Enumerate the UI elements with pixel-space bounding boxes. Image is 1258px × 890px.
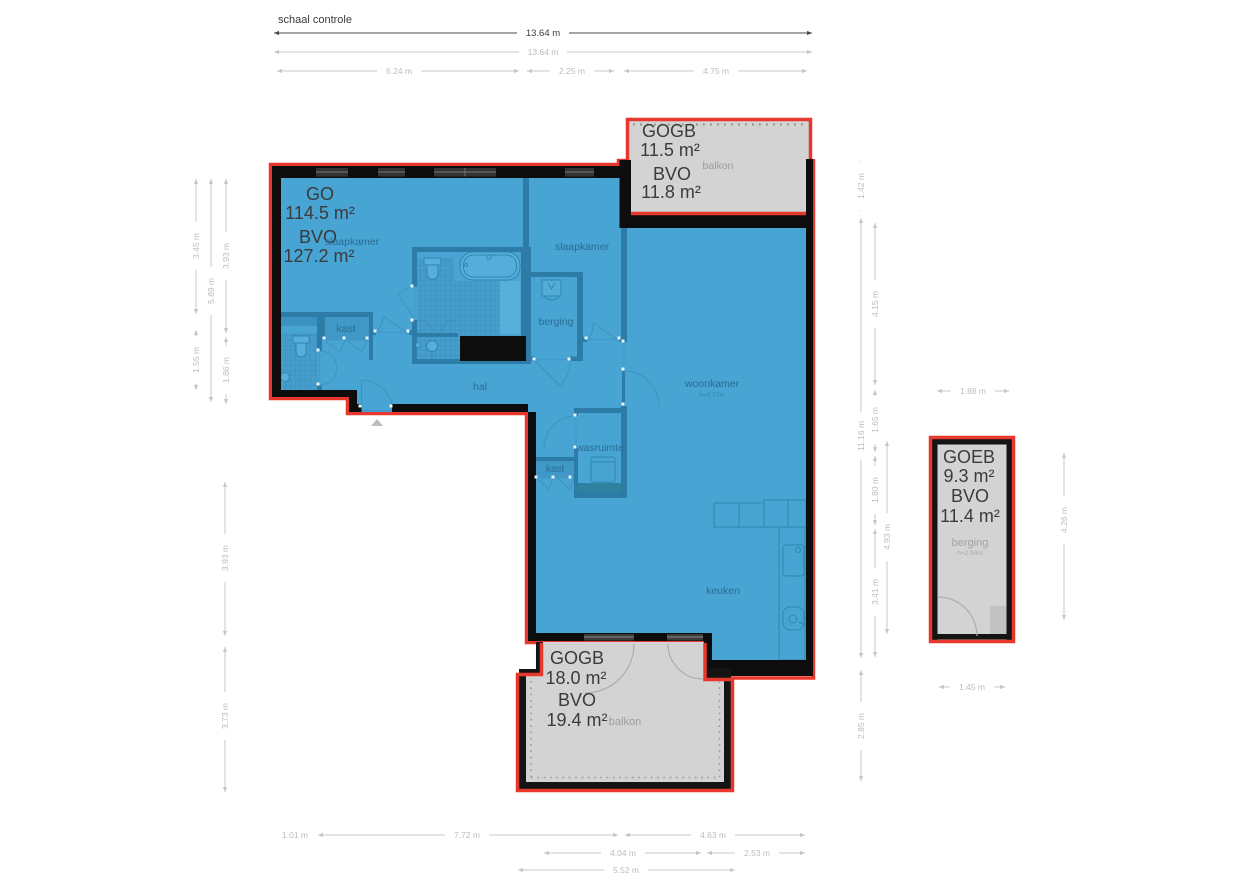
svg-text:11.8 m²: 11.8 m² bbox=[641, 182, 701, 202]
svg-text:5.89 m: 5.89 m bbox=[206, 278, 216, 304]
svg-text:2.25 m: 2.25 m bbox=[559, 66, 585, 76]
svg-text:11.16 m: 11.16 m bbox=[856, 421, 866, 451]
svg-text:schaal controle: schaal controle bbox=[278, 14, 352, 26]
svg-text:13.64 m: 13.64 m bbox=[526, 28, 560, 39]
svg-text:1.65 m: 1.65 m bbox=[870, 407, 880, 433]
svg-text:1.45 m: 1.45 m bbox=[959, 682, 985, 692]
svg-text:GOEB: GOEB bbox=[943, 447, 995, 467]
svg-text:woonkamer: woonkamer bbox=[684, 378, 740, 390]
svg-text:kast: kast bbox=[546, 464, 565, 475]
svg-text:balkon: balkon bbox=[609, 716, 641, 728]
svg-text:keuken: keuken bbox=[706, 585, 740, 597]
svg-text:4.63 m: 4.63 m bbox=[700, 830, 726, 840]
svg-text:h=2.64m: h=2.64m bbox=[957, 550, 982, 557]
svg-text:BVO: BVO bbox=[558, 690, 596, 710]
svg-text:19.4 m²: 19.4 m² bbox=[546, 710, 607, 730]
svg-text:slaapkamer: slaapkamer bbox=[325, 236, 380, 248]
svg-text:6.24 m: 6.24 m bbox=[386, 66, 412, 76]
svg-text:h=2.77m: h=2.77m bbox=[699, 392, 724, 399]
svg-text:1.80 m: 1.80 m bbox=[870, 477, 880, 503]
svg-text:5.52 m: 5.52 m bbox=[613, 865, 639, 875]
svg-text:1.88 m: 1.88 m bbox=[960, 386, 986, 396]
svg-text:1.01 m: 1.01 m bbox=[282, 830, 308, 840]
svg-text:4.93 m: 4.93 m bbox=[882, 524, 892, 550]
svg-text:3.41 m: 3.41 m bbox=[870, 579, 880, 605]
svg-text:1.55 m: 1.55 m bbox=[191, 347, 201, 373]
svg-text:3.93 m: 3.93 m bbox=[220, 545, 230, 571]
svg-text:2.85 m: 2.85 m bbox=[856, 713, 866, 739]
svg-text:127.2 m²: 127.2 m² bbox=[283, 246, 354, 266]
svg-text:11.4 m²: 11.4 m² bbox=[940, 506, 1000, 526]
svg-text:kast: kast bbox=[336, 323, 355, 335]
svg-text:3.73 m: 3.73 m bbox=[220, 703, 230, 729]
svg-text:wasruimte: wasruimte bbox=[575, 442, 624, 454]
svg-text:4.04 m: 4.04 m bbox=[610, 848, 636, 858]
svg-text:balkon: balkon bbox=[703, 160, 734, 172]
svg-text:4.15 m: 4.15 m bbox=[870, 291, 880, 317]
svg-text:18.0 m²: 18.0 m² bbox=[545, 668, 606, 688]
svg-text:GO: GO bbox=[306, 184, 334, 204]
svg-text:114.5 m²: 114.5 m² bbox=[285, 203, 355, 223]
svg-text:BVO: BVO bbox=[951, 486, 989, 506]
svg-text:9.3 m²: 9.3 m² bbox=[943, 466, 994, 486]
svg-text:7.72 m: 7.72 m bbox=[454, 830, 480, 840]
svg-text:slaapkamer: slaapkamer bbox=[555, 241, 610, 253]
svg-text:3.93 m: 3.93 m bbox=[221, 243, 231, 269]
svg-text:GOGB: GOGB bbox=[550, 648, 604, 668]
svg-text:berging: berging bbox=[538, 316, 573, 328]
svg-text:1.42 m: 1.42 m bbox=[856, 173, 866, 199]
svg-text:hal: hal bbox=[473, 381, 487, 393]
svg-text:13.64 m: 13.64 m bbox=[528, 47, 559, 57]
svg-text:berging: berging bbox=[952, 537, 989, 549]
svg-text:BVO: BVO bbox=[653, 164, 691, 184]
svg-text:4.75 m: 4.75 m bbox=[703, 66, 729, 76]
svg-text:2.53 m: 2.53 m bbox=[744, 848, 770, 858]
svg-text:4.26 m: 4.26 m bbox=[1059, 507, 1069, 533]
svg-text:GOGB: GOGB bbox=[642, 121, 696, 141]
svg-text:3.45 m: 3.45 m bbox=[191, 233, 201, 259]
svg-text:11.5 m²: 11.5 m² bbox=[640, 140, 700, 160]
svg-text:1.86 m: 1.86 m bbox=[221, 357, 231, 383]
